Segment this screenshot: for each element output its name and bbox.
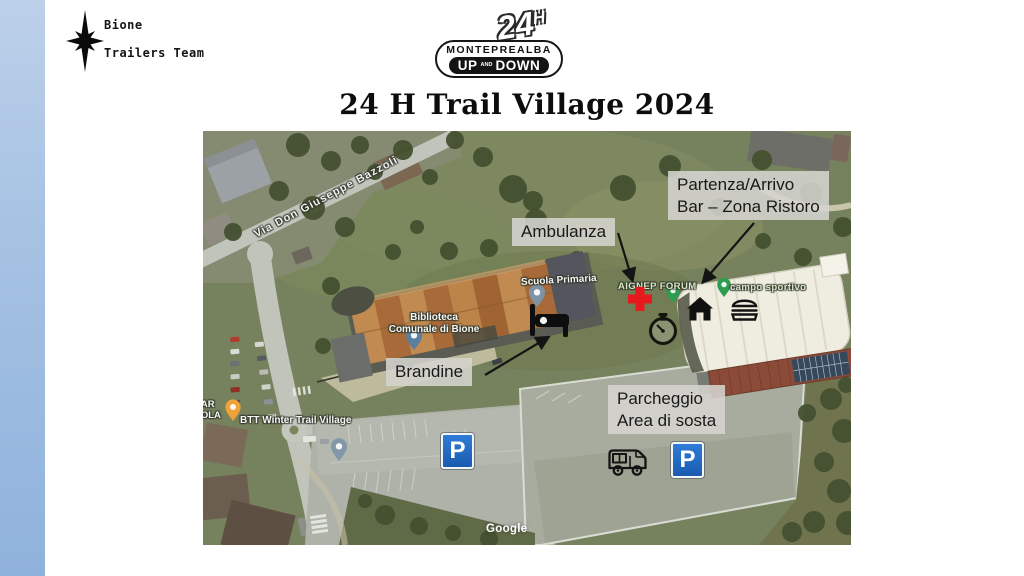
camper-icon xyxy=(610,451,646,475)
event-logo-badge: MONTEPREALBA UP AND DOWN xyxy=(435,40,563,78)
annotation-parcheggio-line2: Area di sosta xyxy=(617,410,716,432)
annotation-partenza-line2: Bar – Zona Ristoro xyxy=(677,196,820,218)
annotation-brandine-line1: Brandine xyxy=(395,361,463,383)
page-title: 24 H Trail Village 2024 xyxy=(203,88,851,121)
event-up: UP xyxy=(458,59,478,72)
blue-side-strip xyxy=(0,0,45,576)
team-logo-line1: Bione xyxy=(104,18,143,32)
red-cross-icon xyxy=(628,287,652,311)
brandine-arrow xyxy=(485,338,547,375)
stopwatch-icon xyxy=(651,313,676,344)
annotation-parcheggio-line1: Parcheggio xyxy=(617,388,716,410)
satellite-map: Via Don Giuseppe Bazzoli Scuola Primaria… xyxy=(203,131,851,545)
event-down: DOWN xyxy=(495,59,540,72)
team-logo: Bione Trailers Team xyxy=(60,8,220,74)
parking-sign: P xyxy=(671,442,704,478)
annotation-brandine: Brandine xyxy=(386,358,472,386)
annotation-ambulanza-line1: Ambulanza xyxy=(521,221,606,243)
ambulanza-arrow xyxy=(618,233,632,279)
annotation-ambulanza: Ambulanza xyxy=(512,218,615,246)
annotation-partenza-line1: Partenza/Arrivo xyxy=(677,174,820,196)
parking-sign: P xyxy=(441,433,474,469)
partenza-arrow xyxy=(704,223,754,281)
event-brand: MONTEPREALBA xyxy=(446,44,551,56)
burger-icon xyxy=(733,301,757,320)
annotation-partenza-arrivo: Partenza/Arrivo Bar – Zona Ristoro xyxy=(668,171,829,220)
home-icon xyxy=(687,297,713,321)
compass-star-icon xyxy=(60,8,110,74)
slide: Bione Trailers Team 24H MONTEPREALBA UP … xyxy=(0,0,1024,576)
event-hours-unit: H xyxy=(531,7,546,28)
annotation-parcheggio: Parcheggio Area di sosta xyxy=(608,385,725,434)
event-and: AND xyxy=(481,63,493,68)
bed-icon xyxy=(530,304,569,337)
team-logo-line2: Trailers Team xyxy=(104,46,204,60)
event-updown-pill: UP AND DOWN xyxy=(449,57,549,74)
